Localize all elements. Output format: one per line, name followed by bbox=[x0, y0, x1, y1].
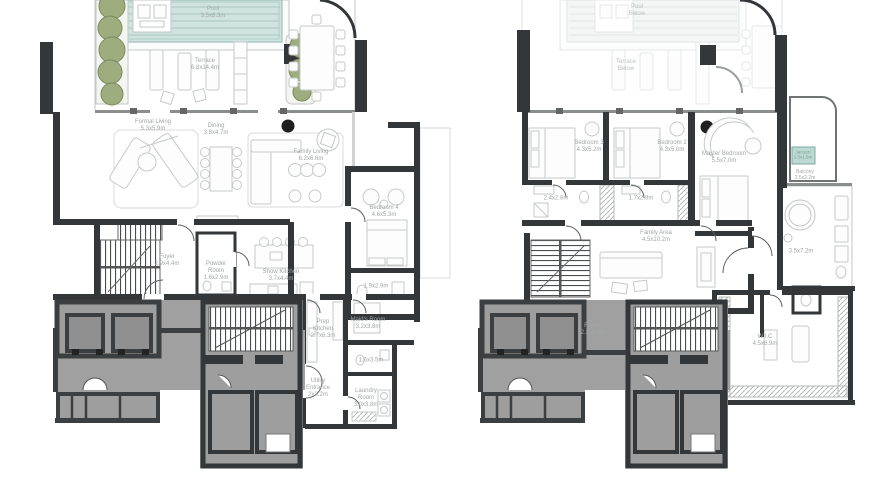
dining-furniture bbox=[201, 147, 242, 191]
master-bath bbox=[782, 183, 852, 288]
terrace-below-ghost bbox=[522, 0, 782, 110]
terrace-core-pier bbox=[700, 45, 716, 65]
left-core bbox=[53, 300, 305, 468]
closet-strip bbox=[600, 185, 614, 223]
bath3-fixtures bbox=[534, 186, 589, 217]
wic bbox=[714, 287, 852, 404]
family-area-furniture bbox=[600, 247, 715, 294]
jacuzzi bbox=[792, 147, 815, 164]
bath2-fixtures bbox=[622, 186, 671, 203]
bedroom2-furniture bbox=[614, 122, 684, 178]
pool bbox=[103, 0, 289, 50]
right-core bbox=[478, 300, 730, 468]
upper-glass-wall bbox=[522, 108, 782, 114]
bedroom3-furniture bbox=[529, 122, 599, 178]
terrace-curve bbox=[716, 67, 742, 93]
foyer-stairs bbox=[100, 222, 162, 296]
floor-plan-sheet: Pool3.5x8.3m Terrace6.8x14.4m Formal Liv… bbox=[0, 0, 890, 500]
balcony bbox=[790, 97, 836, 181]
master-bedroom-furniture bbox=[700, 118, 761, 222]
floor-plan-drawing bbox=[0, 0, 890, 500]
formal-living-furniture bbox=[108, 130, 199, 208]
upper-stairs bbox=[531, 240, 590, 297]
right-plan bbox=[478, 0, 855, 468]
left-plan bbox=[40, 0, 450, 468]
